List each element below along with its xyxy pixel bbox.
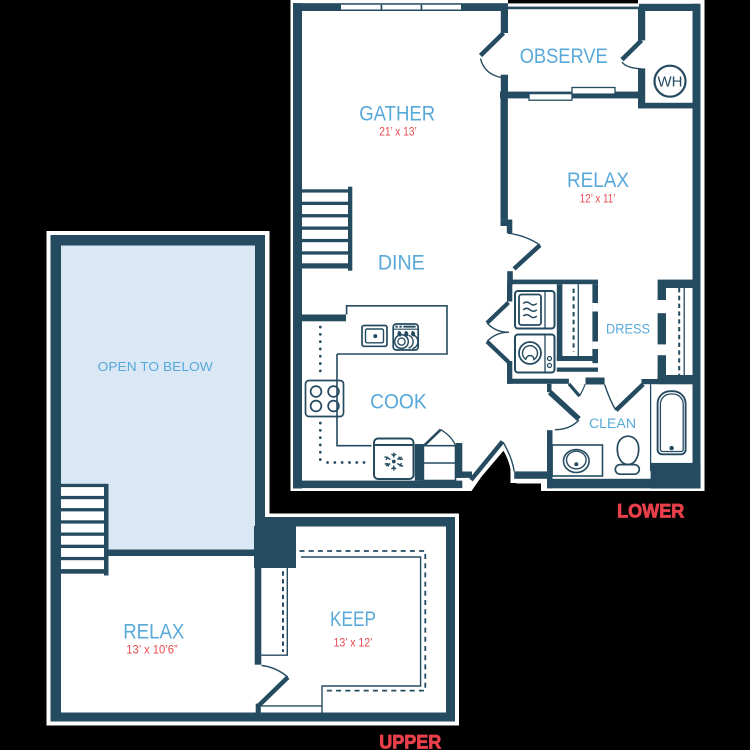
svg-text:LOWER: LOWER — [617, 500, 684, 522]
svg-text:RELAX: RELAX — [123, 621, 184, 644]
svg-text:CLEAN: CLEAN — [589, 416, 636, 431]
svg-text:13’ x 12’: 13’ x 12’ — [334, 638, 373, 650]
svg-text:RELAX: RELAX — [567, 169, 629, 192]
svg-text:COOK: COOK — [370, 390, 427, 413]
svg-text:GATHER: GATHER — [359, 103, 435, 126]
svg-text:13’ x 10’6”: 13’ x 10’6” — [126, 645, 178, 657]
svg-text:21’ x 13’: 21’ x 13’ — [379, 127, 417, 139]
svg-text:KEEP: KEEP — [330, 608, 376, 631]
svg-text:WH: WH — [658, 73, 683, 90]
svg-text:OBSERVE: OBSERVE — [520, 45, 608, 68]
svg-text:DRESS: DRESS — [606, 322, 650, 337]
svg-text:OPEN TO BELOW: OPEN TO BELOW — [98, 359, 214, 374]
svg-text:UPPER: UPPER — [379, 732, 441, 750]
svg-text:DINE: DINE — [378, 251, 425, 274]
svg-text:12’ x 11’: 12’ x 11’ — [580, 194, 616, 206]
